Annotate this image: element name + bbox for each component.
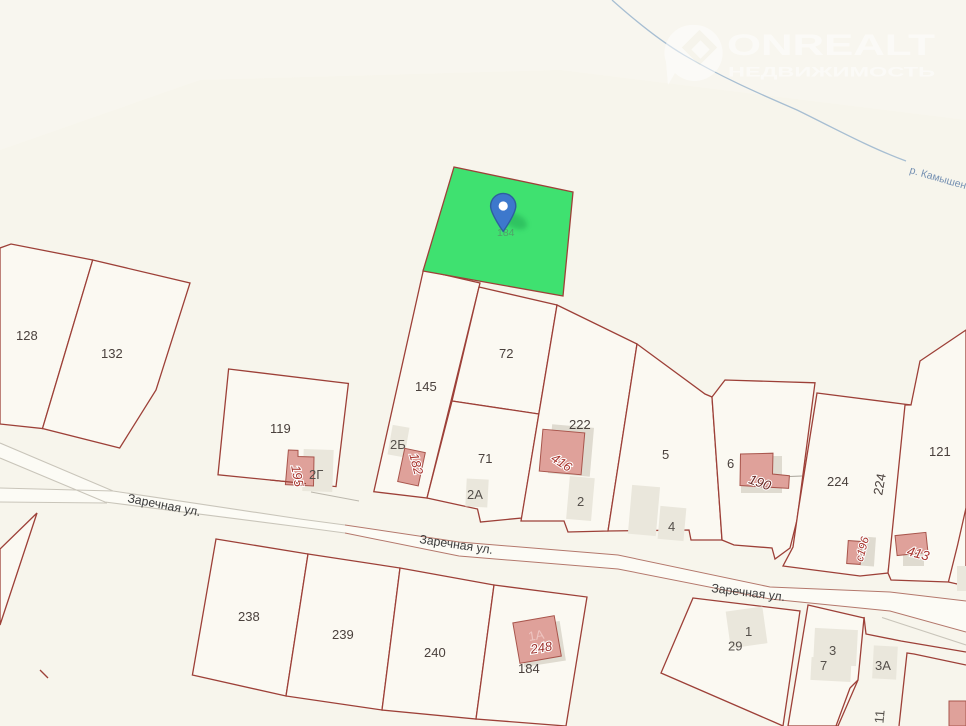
svg-text:7: 7 xyxy=(820,658,827,673)
svg-text:71: 71 xyxy=(478,451,492,466)
svg-text:184: 184 xyxy=(518,661,540,676)
svg-text:3А: 3А xyxy=(875,658,891,673)
svg-text:239: 239 xyxy=(332,627,354,642)
svg-text:119: 119 xyxy=(270,421,291,436)
svg-text:11: 11 xyxy=(871,709,887,724)
svg-text:3: 3 xyxy=(829,643,836,658)
svg-text:224: 224 xyxy=(827,474,849,489)
svg-text:222: 222 xyxy=(569,417,591,432)
svg-text:2Г: 2Г xyxy=(309,467,323,482)
svg-text:2: 2 xyxy=(577,494,584,509)
svg-text:НЕДВИЖИМОСТЬ: НЕДВИЖИМОСТЬ xyxy=(728,65,936,80)
svg-text:128: 128 xyxy=(16,328,38,343)
svg-text:132: 132 xyxy=(101,346,123,361)
svg-text:238: 238 xyxy=(238,609,260,624)
svg-text:6: 6 xyxy=(727,456,734,471)
svg-text:4: 4 xyxy=(668,519,675,534)
svg-text:121: 121 xyxy=(929,444,951,459)
svg-text:ONREALT: ONREALT xyxy=(727,29,935,62)
svg-text:145: 145 xyxy=(415,379,437,394)
svg-text:29: 29 xyxy=(728,639,742,654)
svg-text:240: 240 xyxy=(424,645,446,660)
svg-text:5: 5 xyxy=(662,447,669,462)
svg-text:2А: 2А xyxy=(467,487,483,502)
svg-text:2Б: 2Б xyxy=(390,437,406,452)
svg-text:1: 1 xyxy=(745,624,752,639)
svg-text:72: 72 xyxy=(499,346,513,361)
